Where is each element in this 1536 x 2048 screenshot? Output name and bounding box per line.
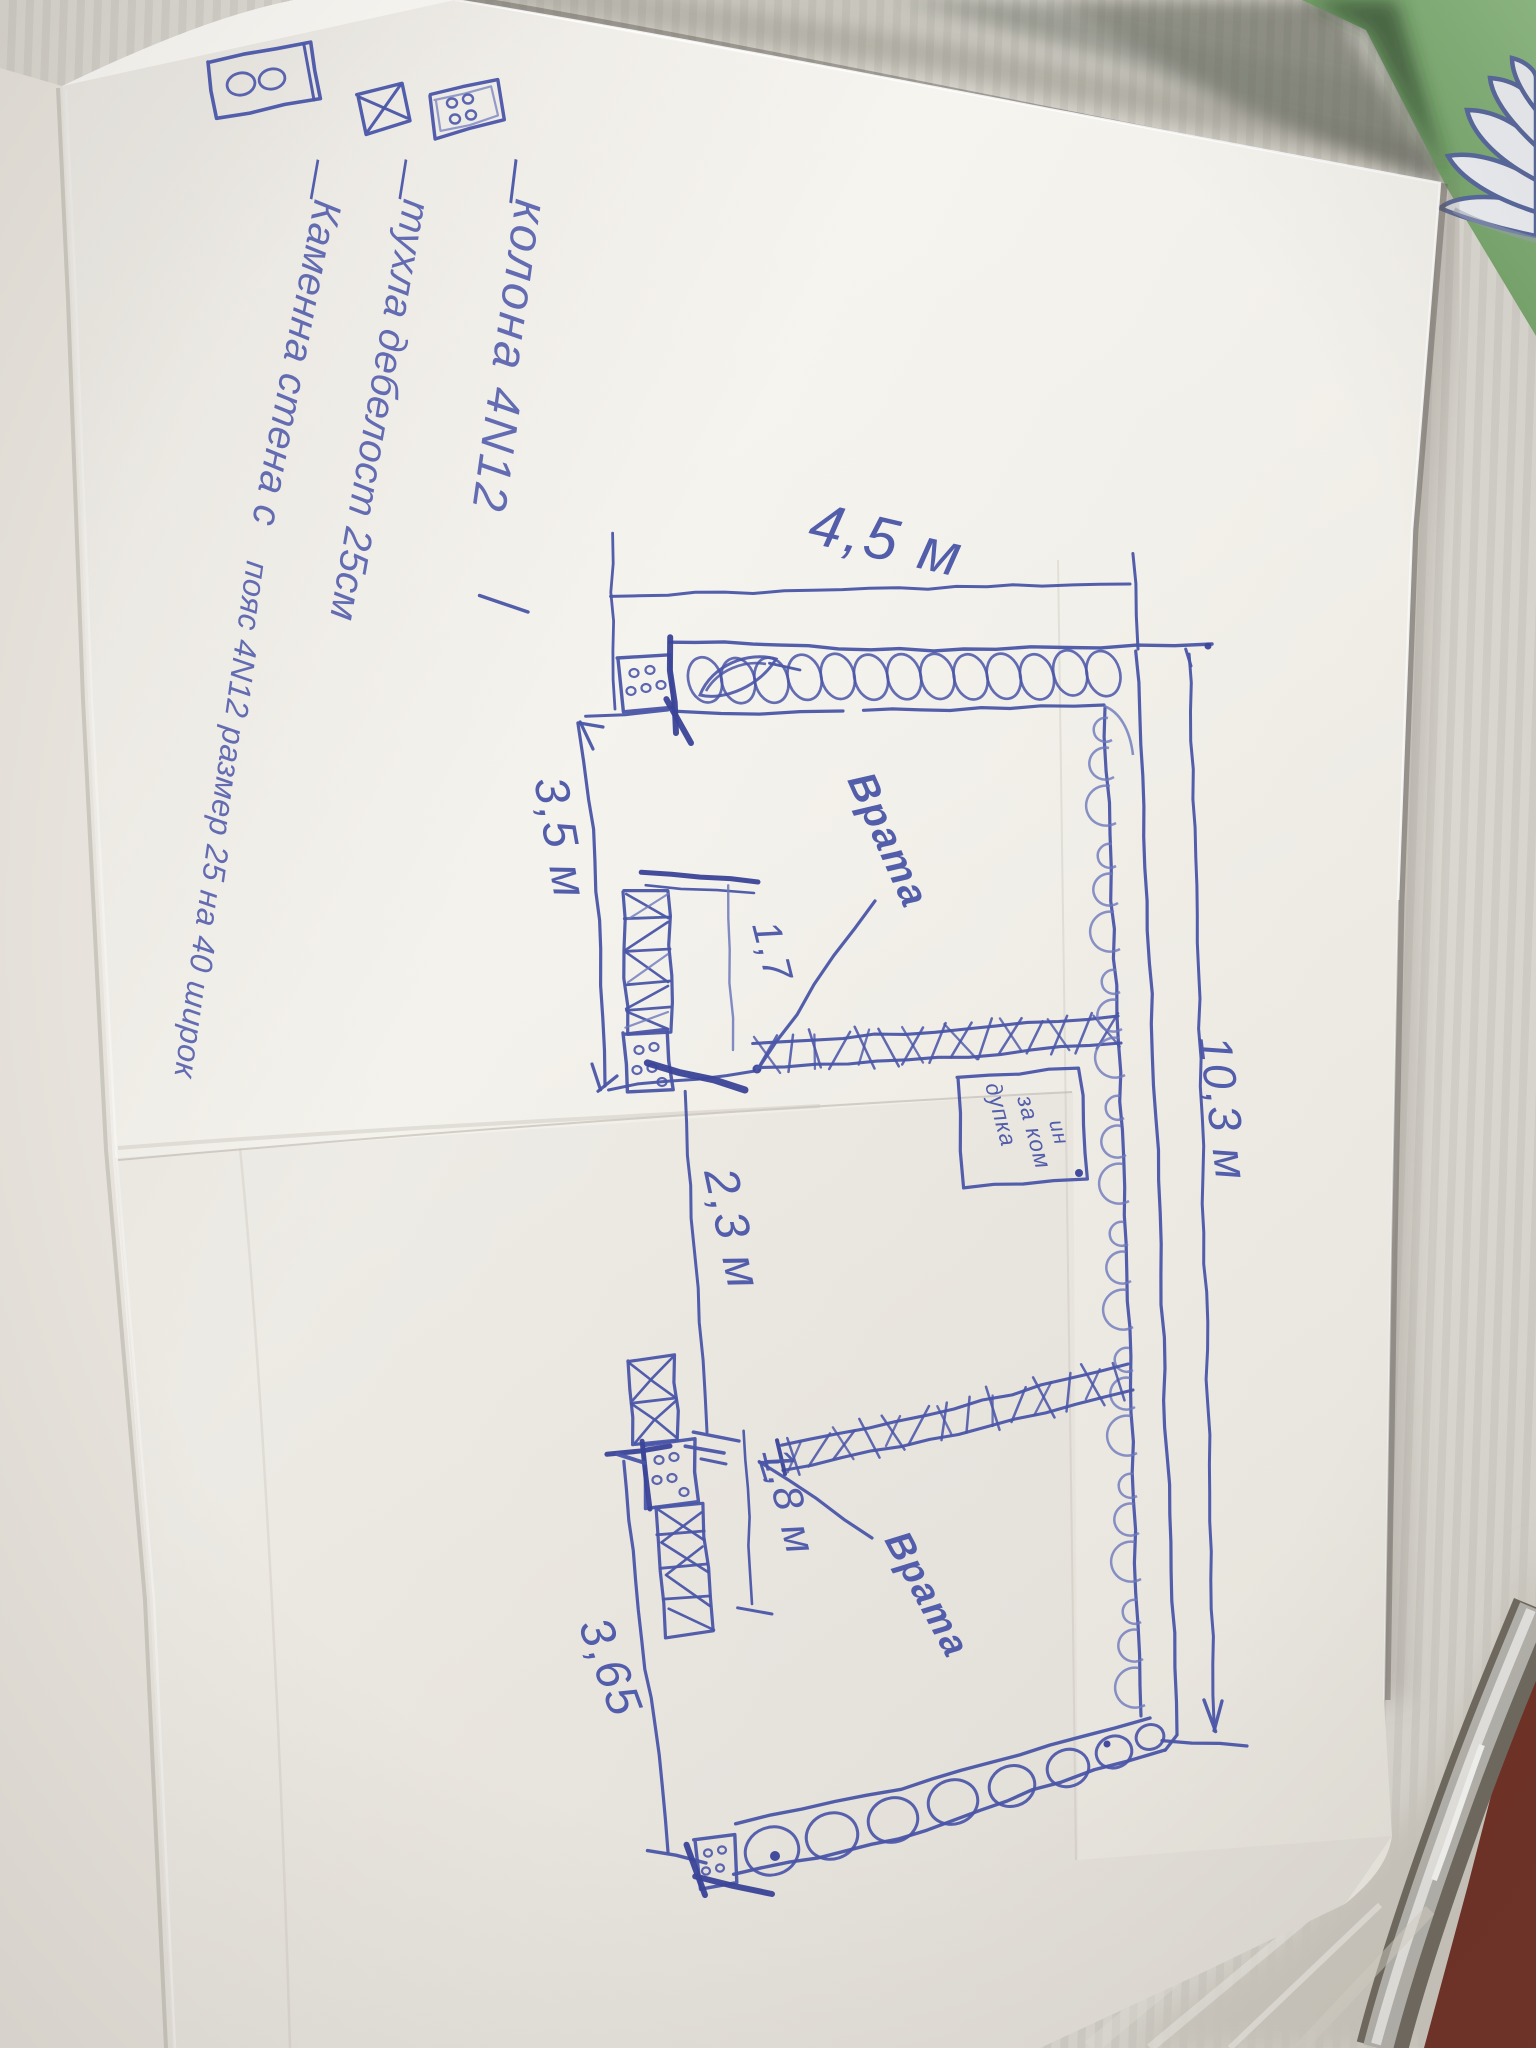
svg-text:—: — bbox=[292, 155, 343, 204]
svg-text:—: — bbox=[381, 156, 431, 204]
